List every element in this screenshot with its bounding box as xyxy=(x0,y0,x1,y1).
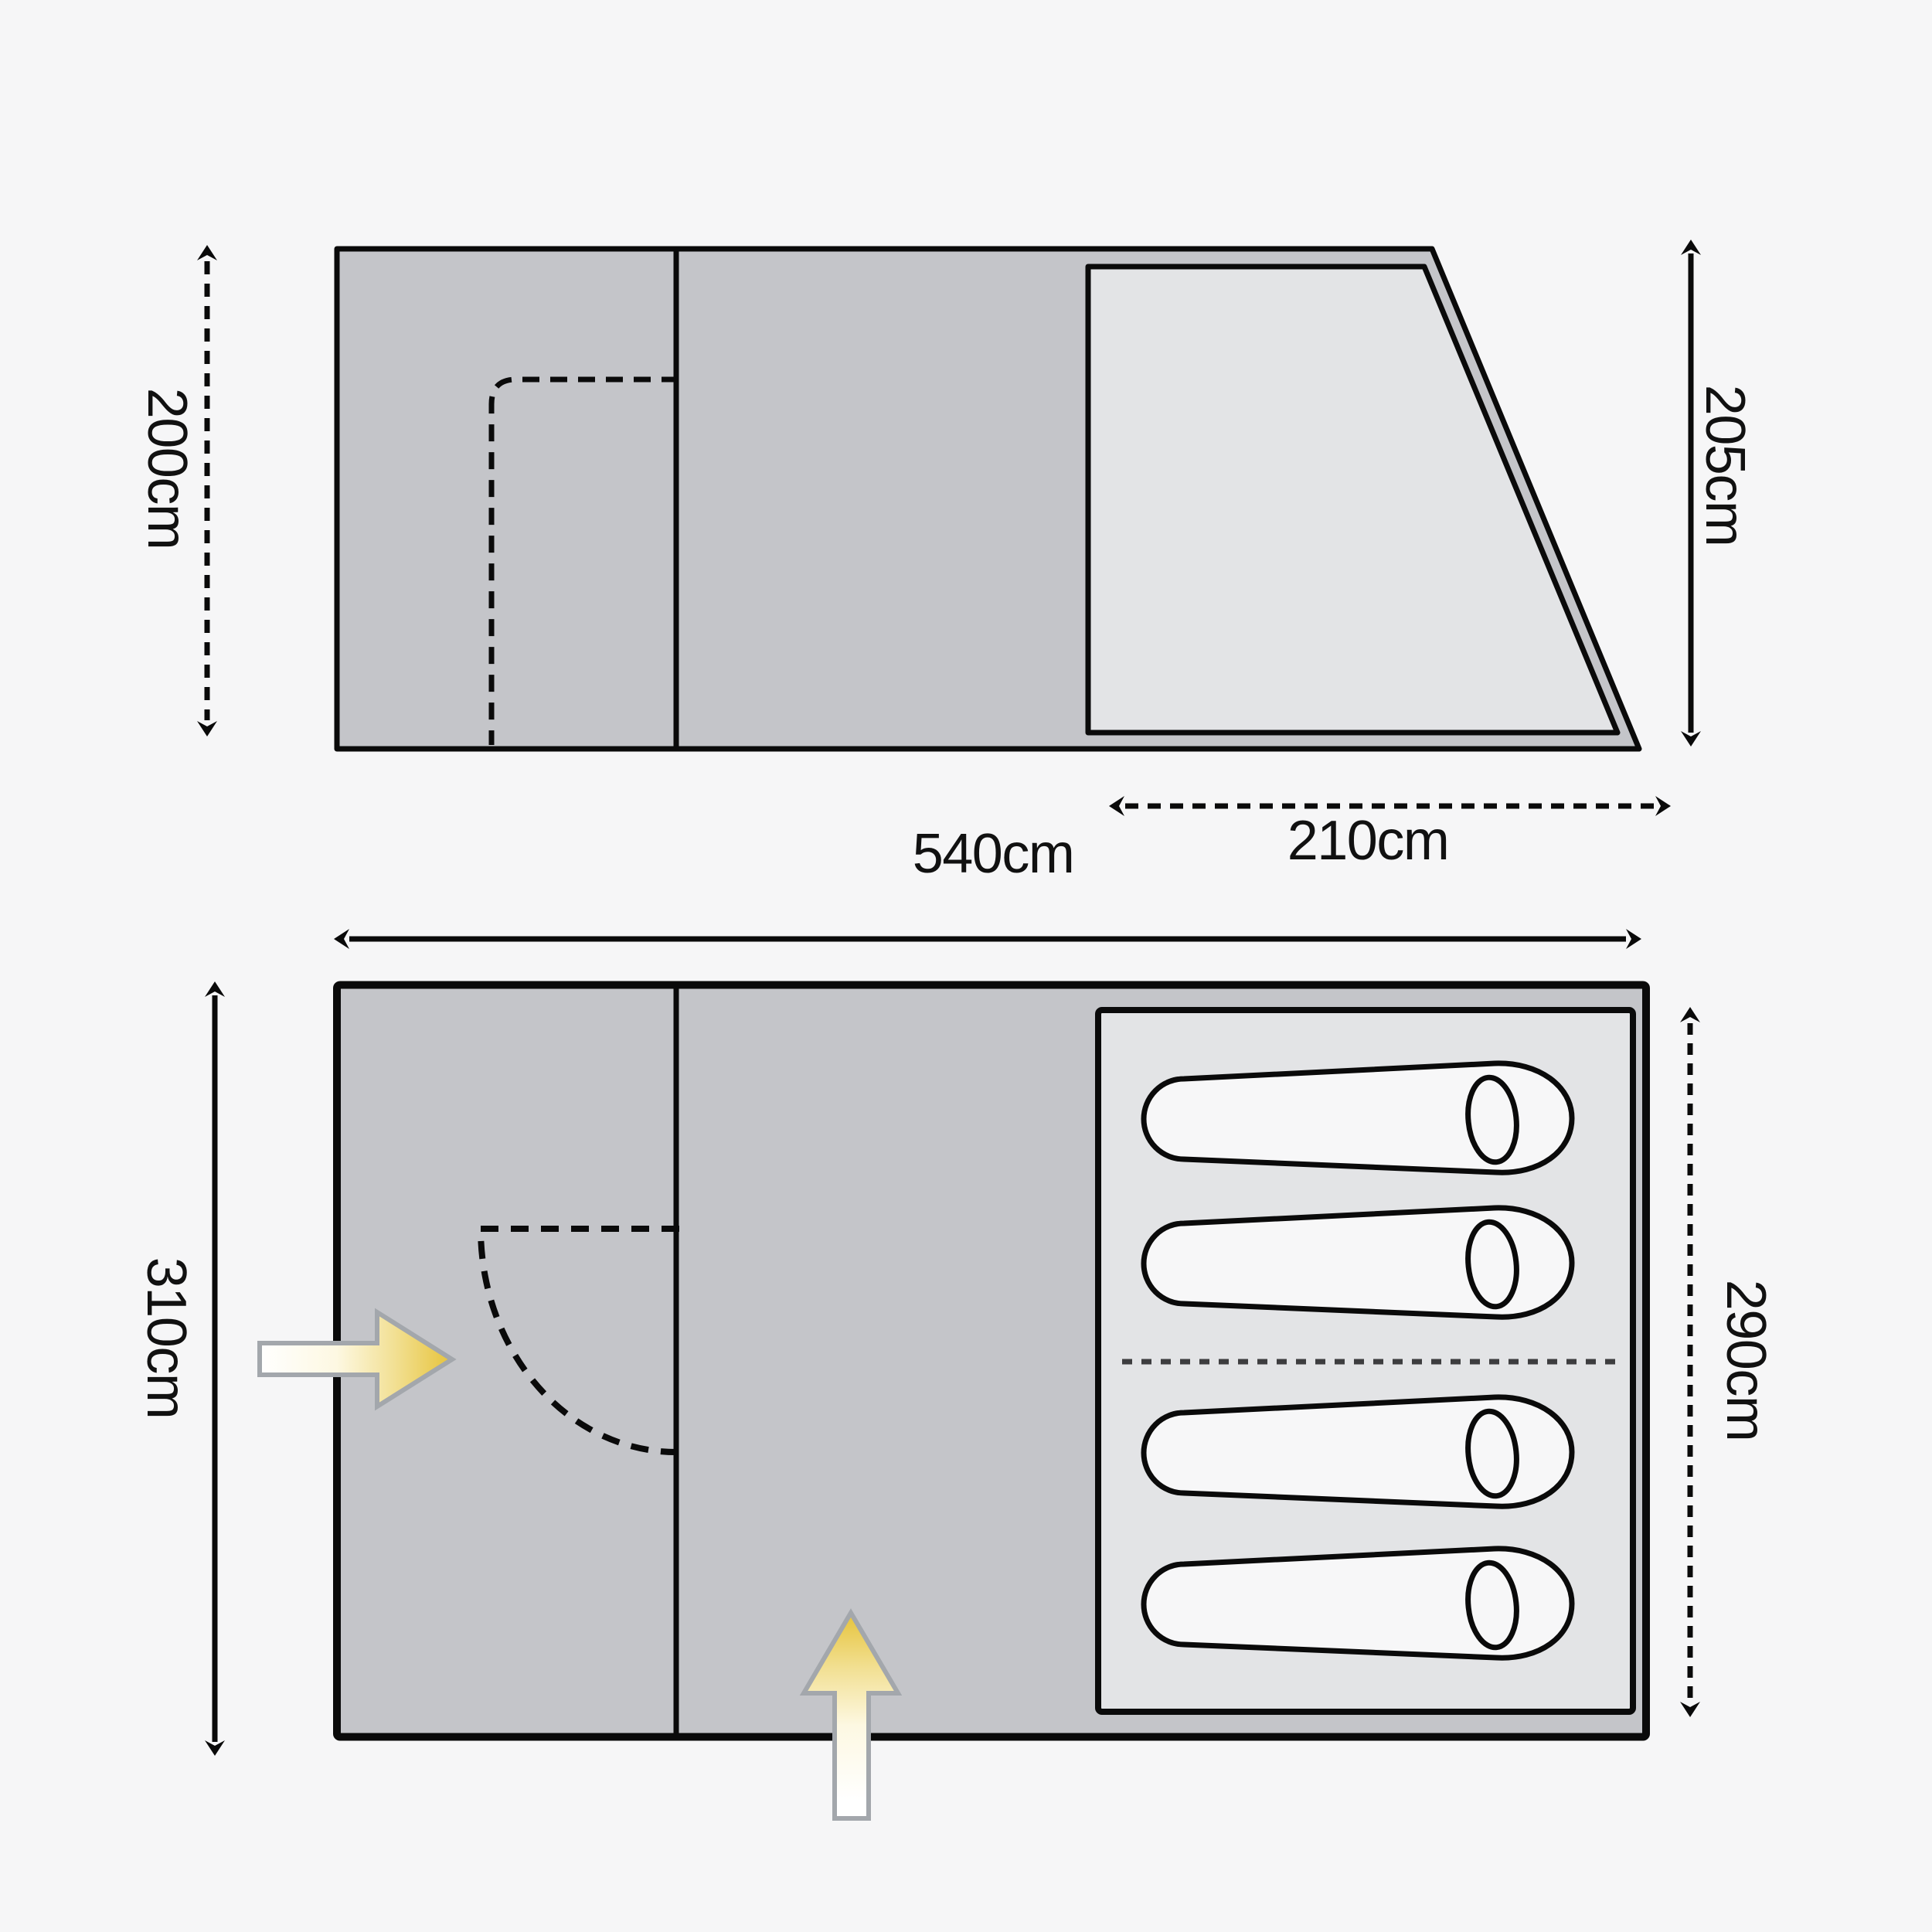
svg-text:210cm: 210cm xyxy=(1287,810,1449,872)
svg-text:205cm: 205cm xyxy=(1694,385,1756,546)
svg-text:310cm: 310cm xyxy=(135,1257,197,1419)
svg-text:540cm: 540cm xyxy=(913,823,1074,885)
svg-text:200cm: 200cm xyxy=(136,388,198,549)
svg-text:290cm: 290cm xyxy=(1715,1280,1777,1441)
